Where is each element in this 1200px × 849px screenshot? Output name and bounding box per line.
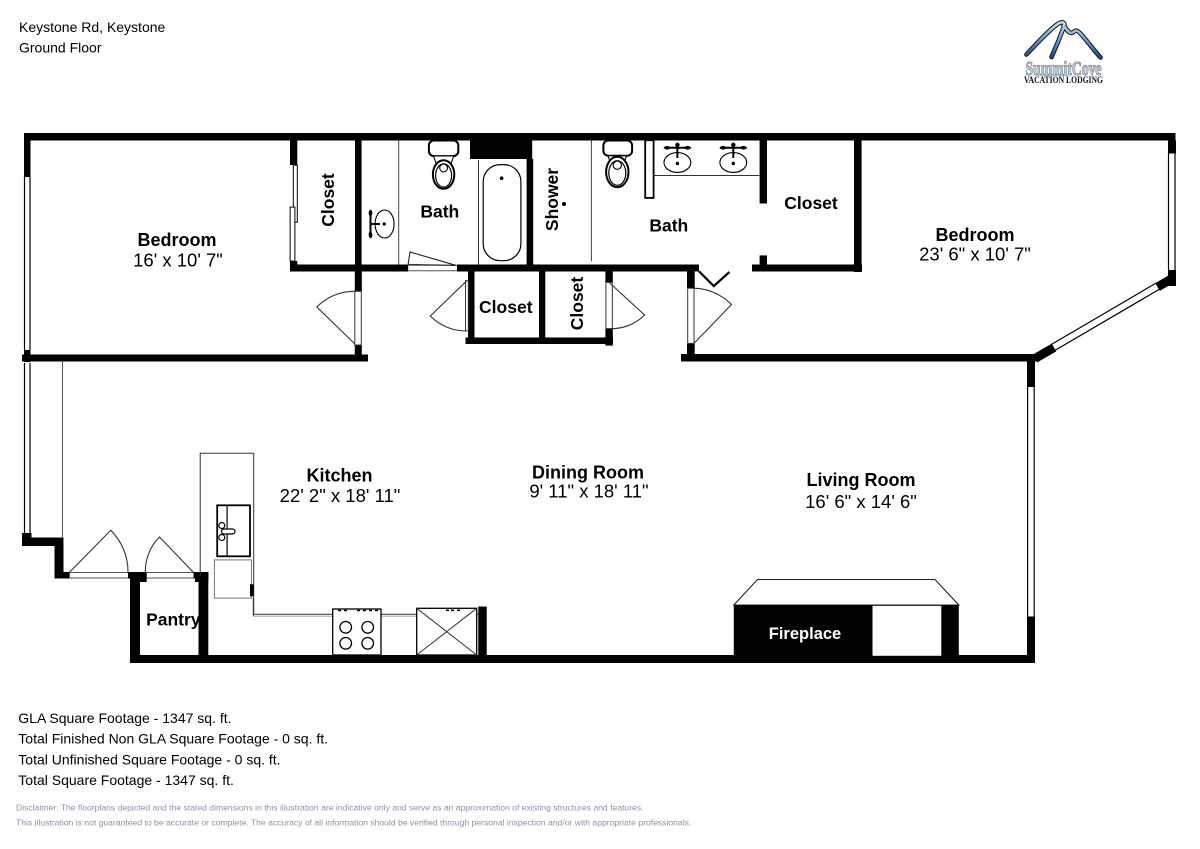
svg-text:Total Finished Non GLA Square: Total Finished Non GLA Square Footage - … bbox=[18, 731, 328, 747]
svg-text:Closet: Closet bbox=[318, 173, 338, 227]
svg-text:Bedroom: Bedroom bbox=[935, 225, 1014, 245]
svg-text:9' 11" x 18' 11": 9' 11" x 18' 11" bbox=[529, 481, 648, 502]
svg-text:Dining Room: Dining Room bbox=[532, 463, 644, 483]
svg-text:Kitchen: Kitchen bbox=[306, 466, 372, 486]
svg-text:Living Room: Living Room bbox=[807, 470, 916, 490]
svg-text:Total Unfinished Square Footag: Total Unfinished Square Footage - 0 sq. … bbox=[18, 751, 280, 767]
svg-text:Closet: Closet bbox=[479, 297, 533, 317]
svg-text:Pantry: Pantry bbox=[146, 609, 201, 629]
svg-text:This illustration is not guara: This illustration is not guaranteed to b… bbox=[16, 818, 691, 828]
svg-text:Keystone Rd, Keystone: Keystone Rd, Keystone bbox=[19, 19, 166, 35]
svg-text:Bedroom: Bedroom bbox=[137, 230, 216, 250]
svg-text:22' 2" x 18' 11": 22' 2" x 18' 11" bbox=[280, 485, 401, 506]
svg-text:Bath: Bath bbox=[649, 216, 688, 236]
svg-text:16' 6" x 14' 6": 16' 6" x 14' 6" bbox=[805, 491, 917, 512]
svg-text:VACATION LODGING: VACATION LODGING bbox=[1024, 75, 1103, 85]
svg-text:Ground Floor: Ground Floor bbox=[19, 40, 102, 56]
svg-text:23' 6" x 10' 7": 23' 6" x 10' 7" bbox=[919, 244, 1031, 265]
svg-text:Bath: Bath bbox=[420, 202, 459, 222]
svg-text:GLA Square Footage - 1347 sq.: GLA Square Footage - 1347 sq. ft. bbox=[18, 710, 231, 726]
svg-text:Closet: Closet bbox=[784, 193, 838, 213]
svg-text:Closet: Closet bbox=[567, 277, 587, 331]
svg-text:Total Square Footage - 1347 sq: Total Square Footage - 1347 sq. ft. bbox=[18, 772, 234, 788]
svg-text:Shower: Shower bbox=[542, 168, 562, 231]
svg-text:16' x 10' 7": 16' x 10' 7" bbox=[133, 250, 223, 271]
svg-text:Disclaimer: The floorplans dep: Disclaimer: The floorplans depicted and … bbox=[16, 803, 644, 813]
svg-text:Fireplace: Fireplace bbox=[769, 625, 841, 643]
